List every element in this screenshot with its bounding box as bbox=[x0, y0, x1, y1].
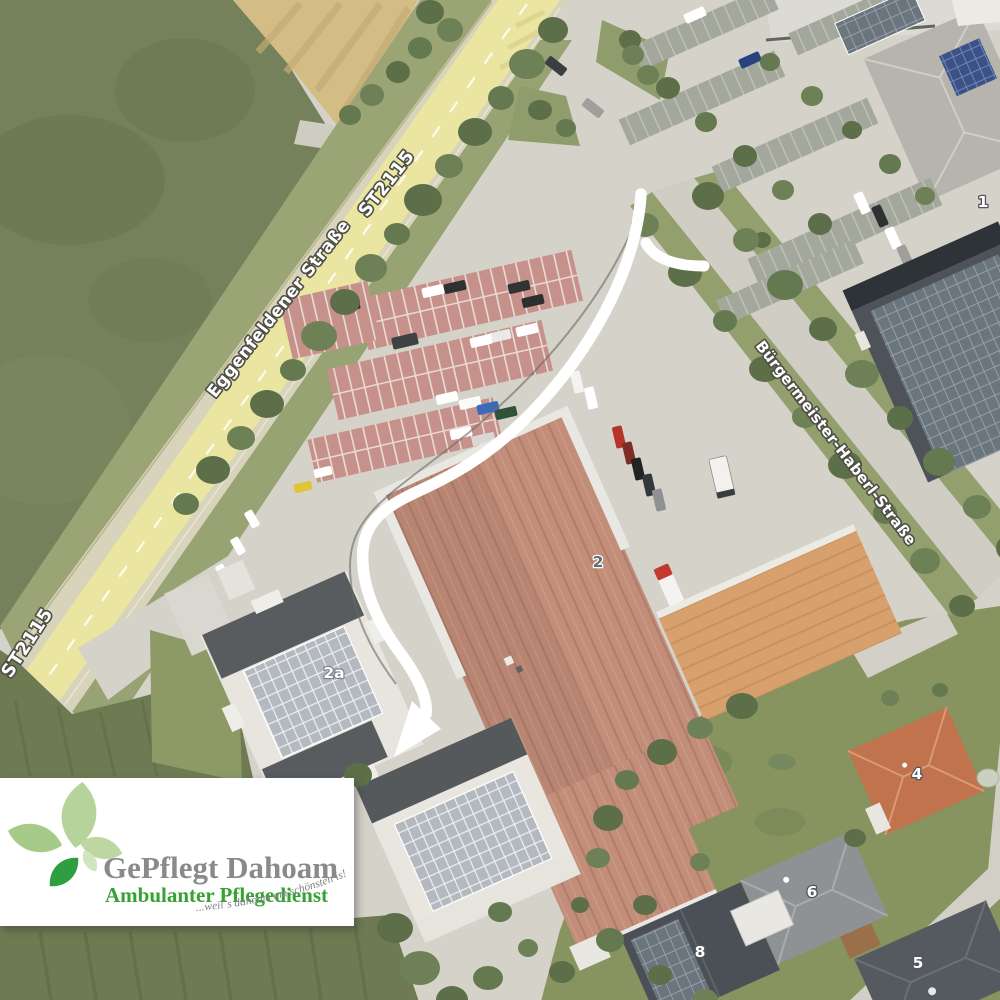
building-number-8: 8 bbox=[695, 943, 706, 961]
logo-graphic: GePflegt Dahoam Ambulanter Pflegedienst … bbox=[0, 778, 354, 926]
logo-title: GePflegt Dahoam bbox=[103, 850, 338, 885]
building-number-4: 4 bbox=[912, 765, 923, 783]
building-number-6: 6 bbox=[807, 883, 818, 901]
building-number-2a: 2a bbox=[323, 664, 344, 682]
building-number-2: 2 bbox=[593, 553, 604, 571]
aerial-map: Eggenfeldener Straße ST2115 ST2115 Bürge… bbox=[0, 0, 1000, 1000]
building-number-1: 1 bbox=[978, 193, 989, 211]
building-number-5: 5 bbox=[913, 954, 924, 972]
garden-circle bbox=[977, 769, 999, 787]
logo-box: GePflegt Dahoam Ambulanter Pflegedienst … bbox=[0, 778, 354, 926]
